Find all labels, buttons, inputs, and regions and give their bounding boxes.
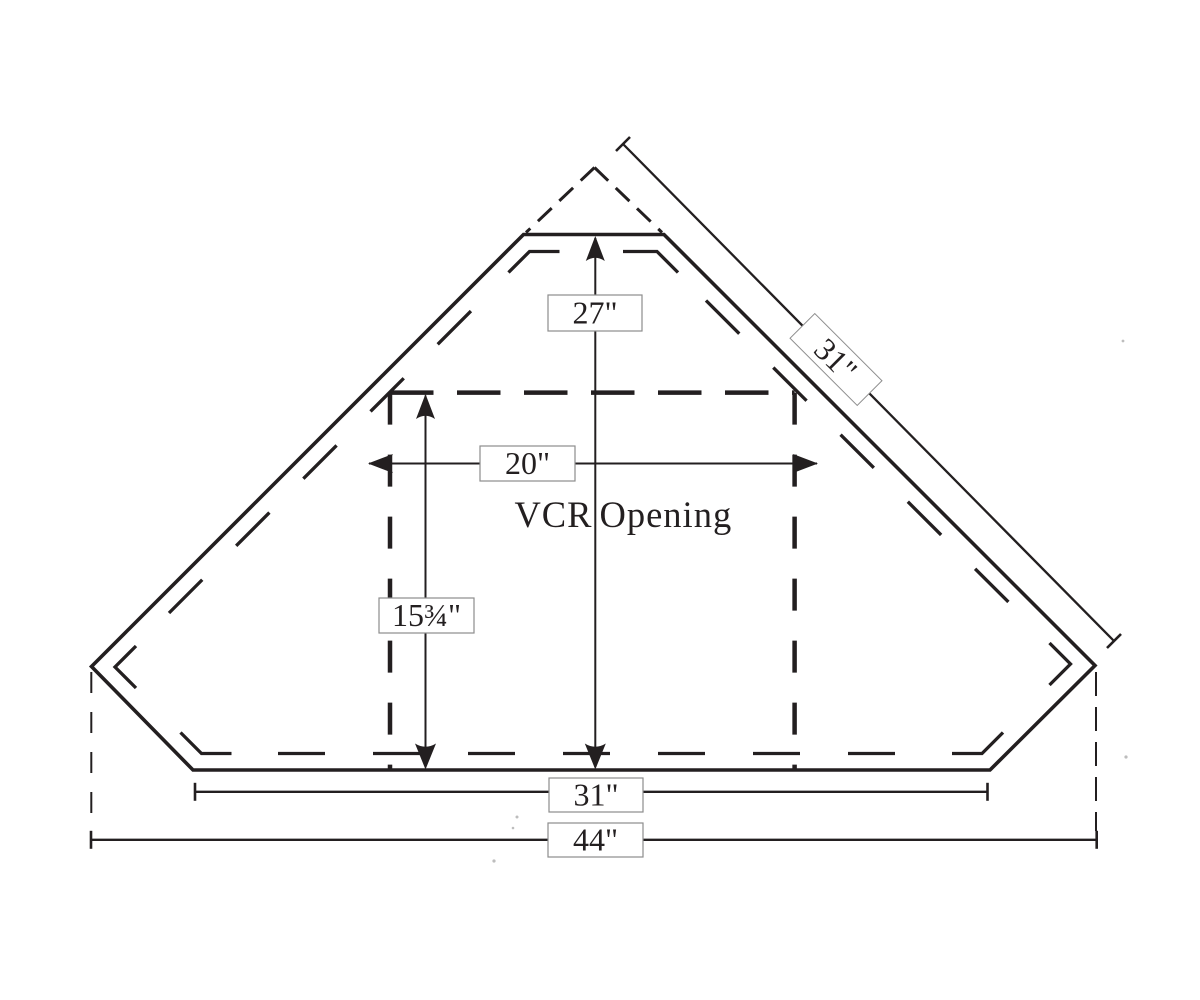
svg-text:Opening: Opening xyxy=(600,494,733,535)
svg-text:15¾": 15¾" xyxy=(392,597,461,633)
svg-text:20": 20" xyxy=(505,445,550,481)
svg-text:31": 31" xyxy=(573,777,618,813)
svg-text:44": 44" xyxy=(573,822,618,858)
svg-text:VCR: VCR xyxy=(514,494,592,535)
svg-text:27": 27" xyxy=(572,295,617,331)
